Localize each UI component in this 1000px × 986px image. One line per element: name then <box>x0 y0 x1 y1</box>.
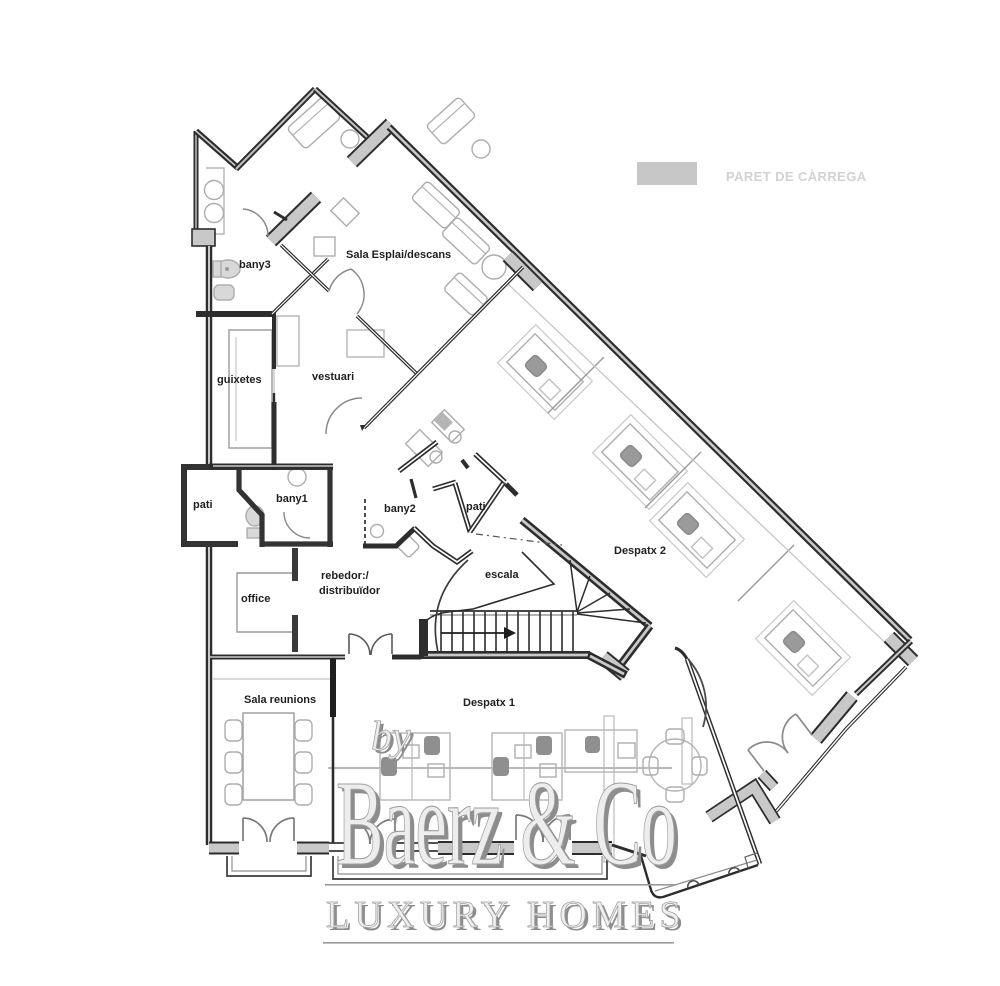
svg-text:vestuari: vestuari <box>312 371 354 383</box>
svg-text:distribuïdor: distribuïdor <box>319 585 381 597</box>
svg-text:guixetes: guixetes <box>217 374 262 386</box>
svg-text:office: office <box>241 593 270 605</box>
svg-text:by: by <box>371 714 411 760</box>
svg-text:escala: escala <box>485 569 520 581</box>
svg-text:Despatx 1: Despatx 1 <box>463 697 515 709</box>
svg-text:rebedor:/: rebedor:/ <box>321 570 369 582</box>
svg-text:Despatx 2: Despatx 2 <box>614 545 666 557</box>
svg-text:pati: pati <box>193 499 213 511</box>
svg-text:Sala reunions: Sala reunions <box>244 694 316 706</box>
svg-text:Baerz & Co: Baerz & Co <box>336 755 677 890</box>
svg-text:pati: pati <box>466 501 486 513</box>
svg-text:Sala Esplai/descans: Sala Esplai/descans <box>346 249 451 261</box>
svg-text:bany3: bany3 <box>239 259 271 271</box>
svg-text:PARET DE CÀRREGA: PARET DE CÀRREGA <box>726 169 867 184</box>
svg-text:bany1: bany1 <box>276 493 308 505</box>
svg-text:bany2: bany2 <box>384 503 416 515</box>
svg-text:LUXURY HOMES: LUXURY HOMES <box>326 894 686 936</box>
